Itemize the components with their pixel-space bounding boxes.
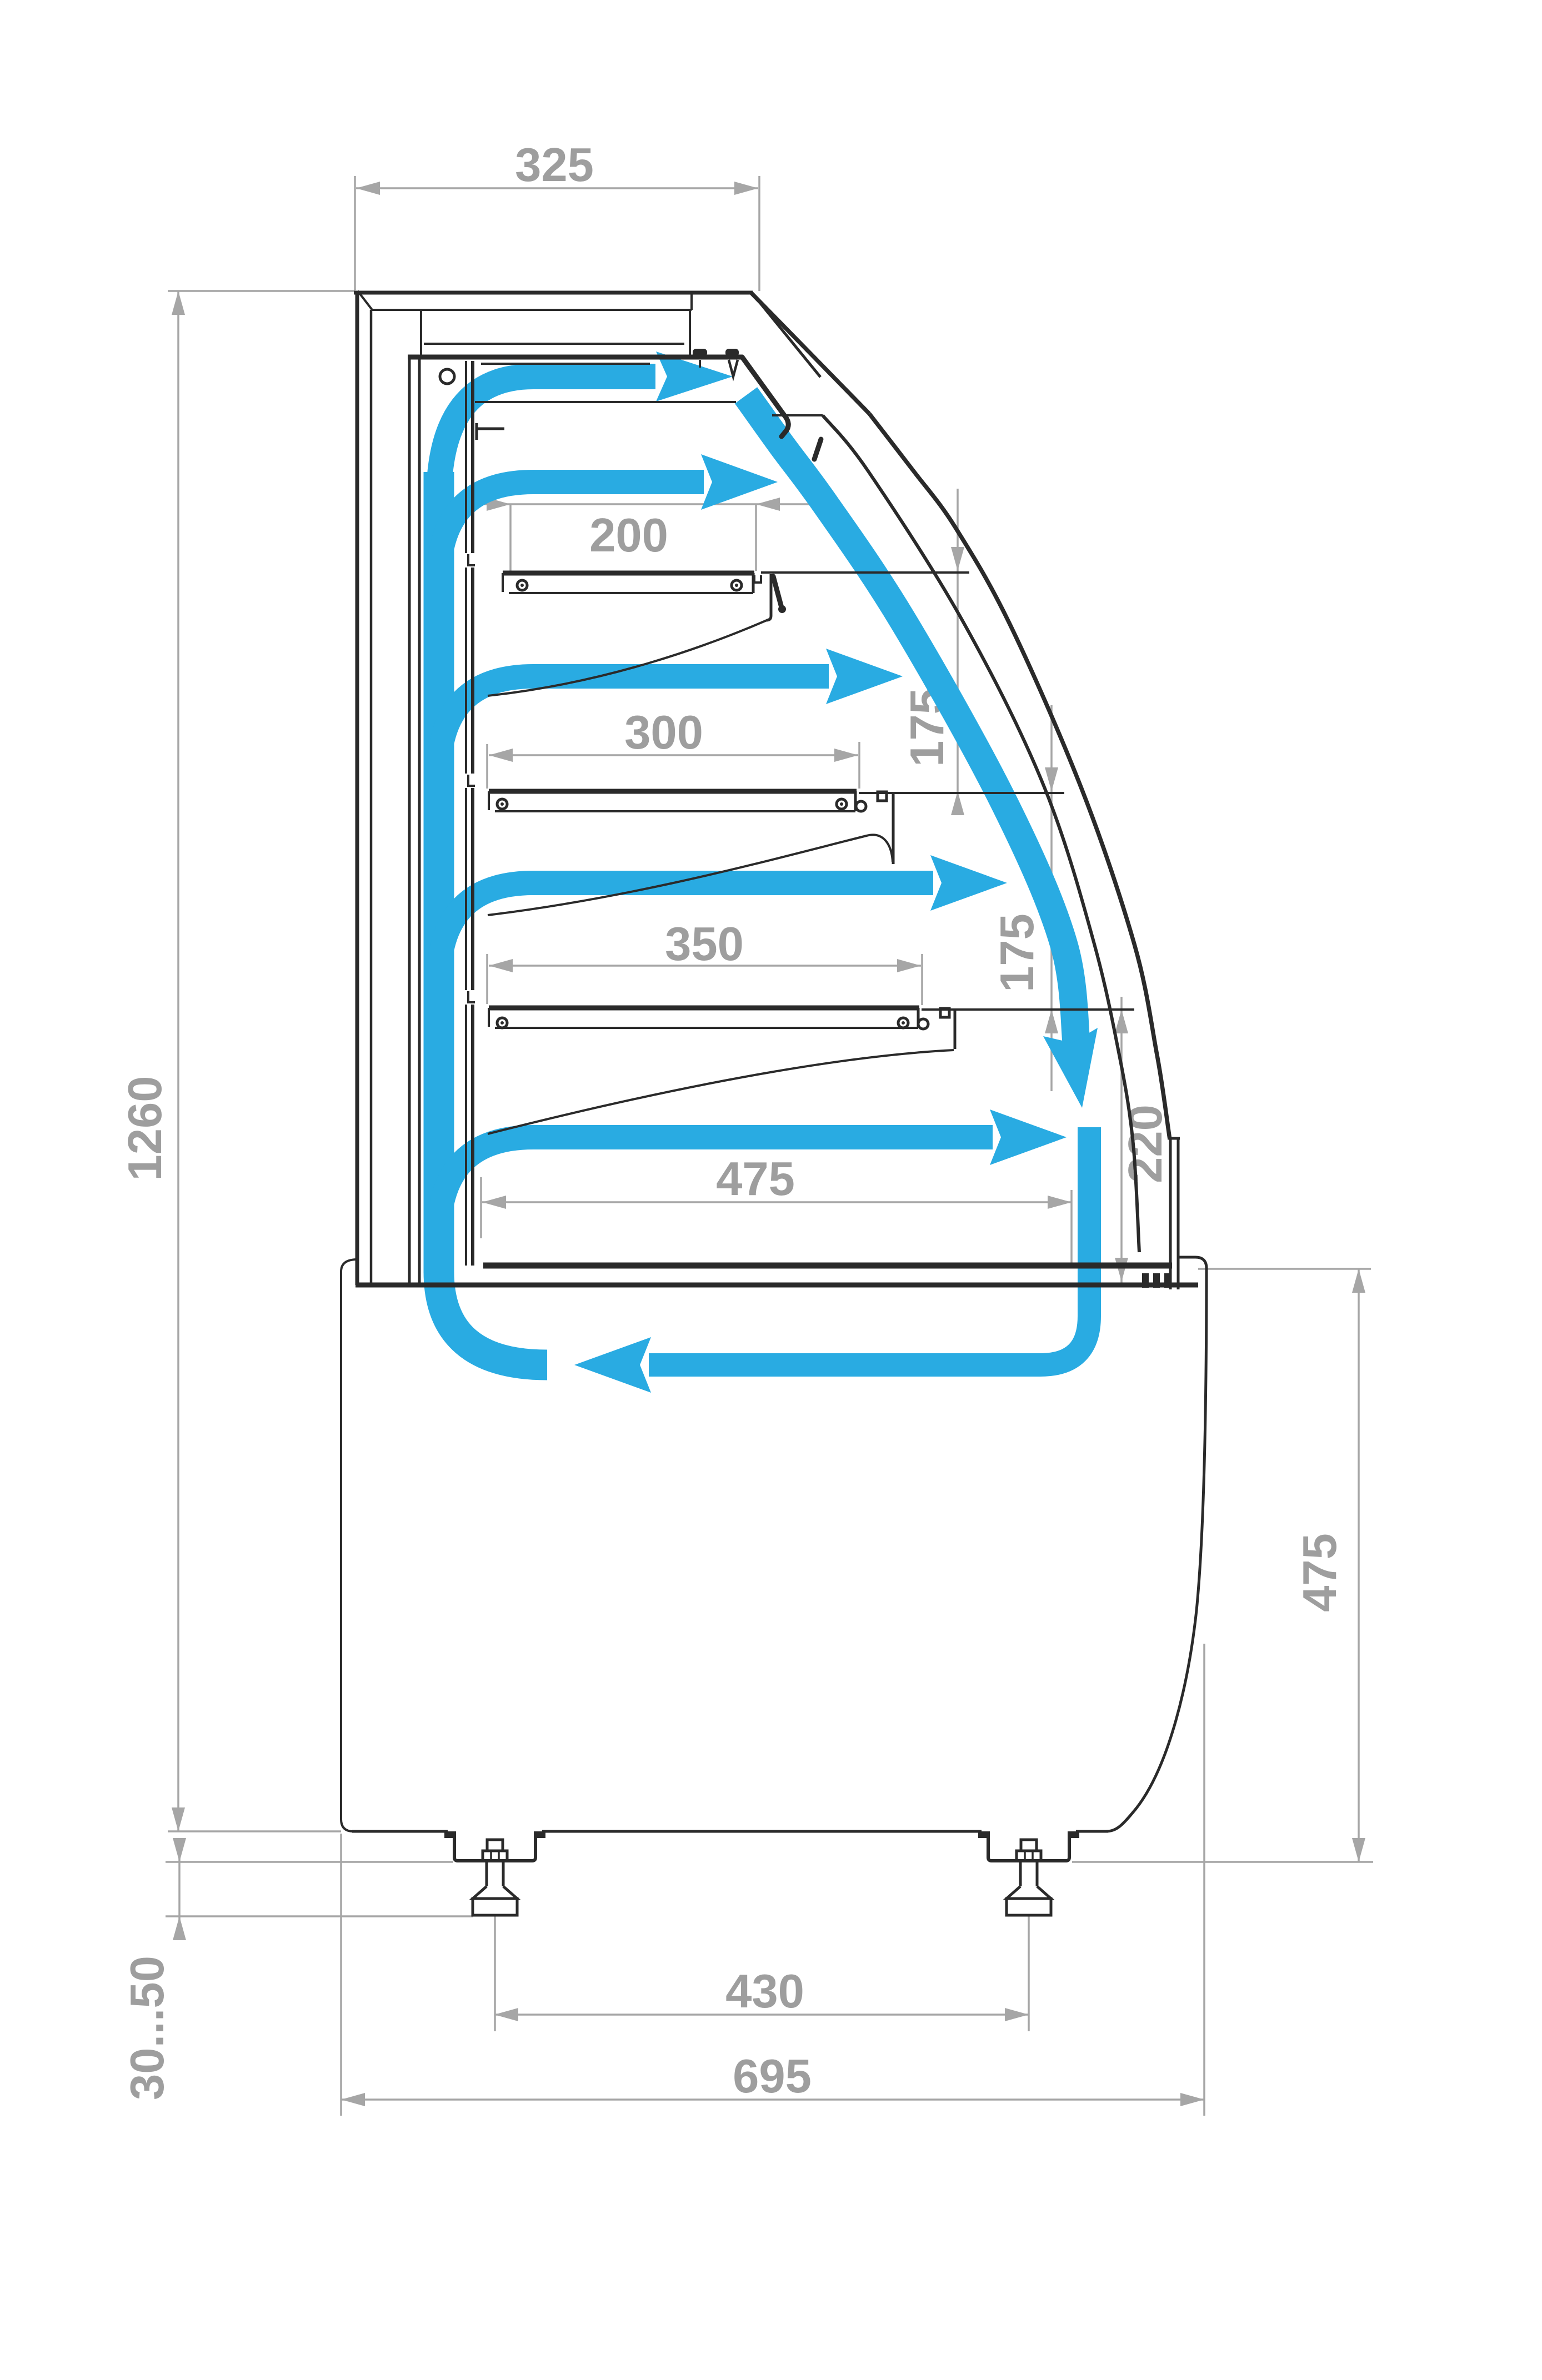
svg-text:475: 475 xyxy=(716,1153,795,1206)
svg-text:30...50: 30...50 xyxy=(121,1956,174,2100)
svg-text:1260: 1260 xyxy=(119,1076,172,1181)
svg-text:695: 695 xyxy=(733,2050,812,2103)
svg-text:475: 475 xyxy=(1294,1533,1346,1612)
svg-text:350: 350 xyxy=(665,918,744,971)
svg-text:325: 325 xyxy=(515,139,594,192)
svg-text:220: 220 xyxy=(1119,1104,1172,1183)
svg-text:300: 300 xyxy=(624,706,703,759)
svg-text:430: 430 xyxy=(725,1965,804,2018)
svg-text:200: 200 xyxy=(589,509,668,562)
svg-text:175: 175 xyxy=(991,913,1044,992)
